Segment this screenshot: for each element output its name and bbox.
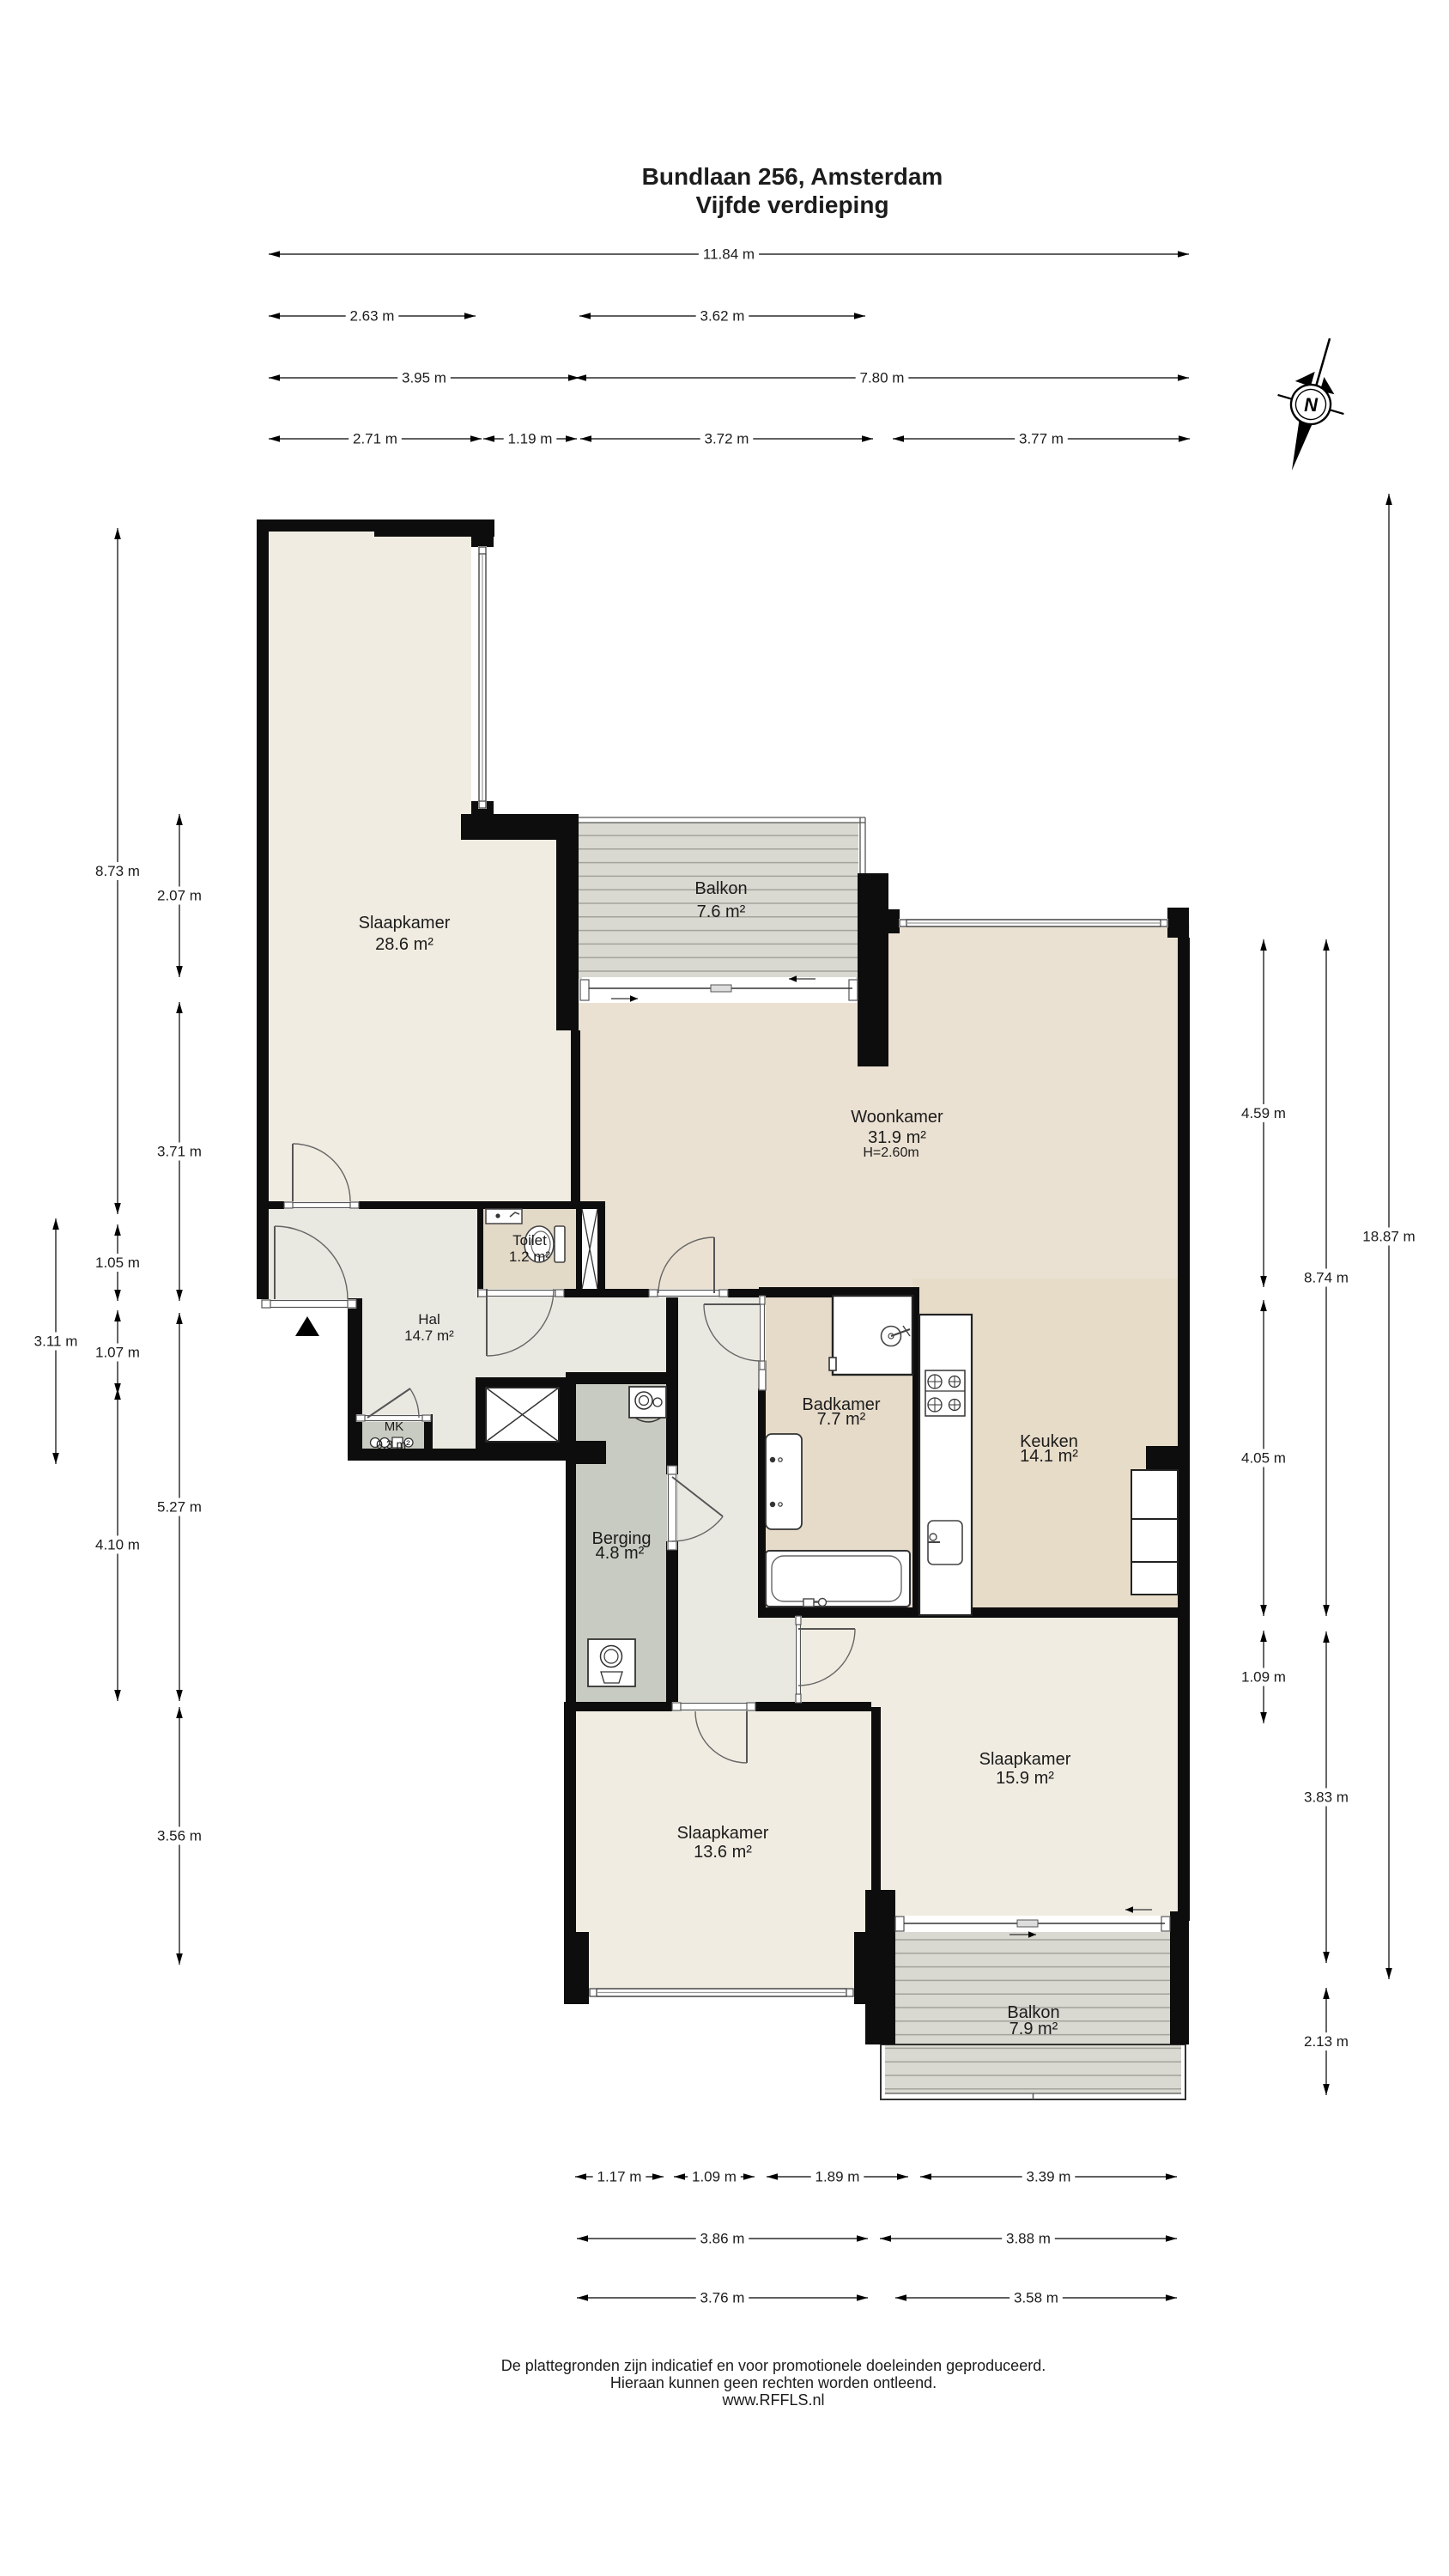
svg-text:Balkon: Balkon [694,879,747,898]
svg-text:18.87 m: 18.87 m [1362,1229,1415,1245]
svg-text:3.58 m: 3.58 m [1014,2290,1058,2306]
svg-text:3.62 m: 3.62 m [700,308,745,325]
svg-text:8.73 m: 8.73 m [95,863,140,879]
svg-text:Hieraan kunnen geen rechten wo: Hieraan kunnen geen rechten worden ontle… [610,2374,937,2391]
svg-text:1.2 m²: 1.2 m² [509,1249,551,1265]
svg-text:0.3 m²: 0.3 m² [376,1437,410,1451]
svg-text:13.6 m²: 13.6 m² [694,1843,752,1862]
svg-text:3.86 m: 3.86 m [700,2231,745,2247]
svg-text:1.09 m: 1.09 m [1241,1669,1286,1686]
svg-text:3.88 m: 3.88 m [1006,2231,1051,2247]
svg-text:Bundlaan 256, Amsterdam: Bundlaan 256, Amsterdam [642,163,943,190]
svg-text:2.63 m: 2.63 m [350,308,395,325]
svg-text:De plattegronden zijn indicati: De plattegronden zijn indicatief en voor… [501,2357,1046,2374]
svg-text:Slaapkamer: Slaapkamer [359,914,451,933]
svg-text:2.07 m: 2.07 m [157,888,202,904]
svg-text:N: N [1304,394,1319,416]
svg-text:31.9 m²: 31.9 m² [868,1128,926,1147]
svg-text:H=2.60m: H=2.60m [863,1145,919,1160]
svg-text:14.7 m²: 14.7 m² [404,1327,454,1344]
svg-text:7.80 m: 7.80 m [860,370,905,386]
svg-text:Vijfde verdieping: Vijfde verdieping [695,191,888,218]
svg-text:3.56 m: 3.56 m [157,1828,202,1844]
svg-text:2.71 m: 2.71 m [353,431,397,447]
svg-text:www.RFFLS.nl: www.RFFLS.nl [721,2391,824,2409]
svg-text:7.7 m²: 7.7 m² [817,1410,866,1429]
svg-text:1.19 m: 1.19 m [508,431,553,447]
svg-text:14.1 m²: 14.1 m² [1020,1447,1078,1466]
svg-text:2.13 m: 2.13 m [1304,2033,1349,2050]
svg-text:Hal: Hal [418,1311,440,1327]
svg-text:28.6 m²: 28.6 m² [375,935,433,954]
svg-text:3.76 m: 3.76 m [700,2290,745,2306]
svg-text:Slaapkamer: Slaapkamer [677,1824,769,1843]
svg-text:3.83 m: 3.83 m [1304,1789,1349,1806]
svg-text:1.17 m: 1.17 m [597,2169,642,2185]
svg-text:7.9 m²: 7.9 m² [1009,2020,1058,2038]
svg-text:Slaapkamer: Slaapkamer [979,1750,1071,1769]
svg-text:15.9 m²: 15.9 m² [996,1769,1054,1788]
svg-text:Toilet: Toilet [512,1232,547,1249]
svg-text:1.05 m: 1.05 m [95,1255,140,1271]
svg-text:3.95 m: 3.95 m [402,370,446,386]
svg-text:3.77 m: 3.77 m [1019,431,1064,447]
svg-text:Woonkamer: Woonkamer [851,1108,943,1127]
svg-text:3.11 m: 3.11 m [34,1334,78,1350]
svg-text:3.72 m: 3.72 m [705,431,749,447]
svg-text:4.8 m²: 4.8 m² [596,1544,645,1563]
svg-text:3.39 m: 3.39 m [1027,2169,1071,2185]
svg-text:7.6 m²: 7.6 m² [697,902,746,921]
svg-text:11.84 m: 11.84 m [703,246,755,263]
svg-text:1.89 m: 1.89 m [815,2169,860,2185]
svg-text:4.59 m: 4.59 m [1241,1105,1286,1121]
svg-text:5.27 m: 5.27 m [157,1499,202,1516]
svg-text:3.71 m: 3.71 m [157,1144,202,1160]
svg-text:MK: MK [385,1419,404,1434]
svg-text:1.07 m: 1.07 m [95,1345,140,1361]
svg-text:8.74 m: 8.74 m [1304,1270,1349,1286]
svg-text:1.09 m: 1.09 m [692,2169,737,2185]
svg-text:4.10 m: 4.10 m [95,1537,140,1553]
svg-text:4.05 m: 4.05 m [1241,1450,1286,1467]
